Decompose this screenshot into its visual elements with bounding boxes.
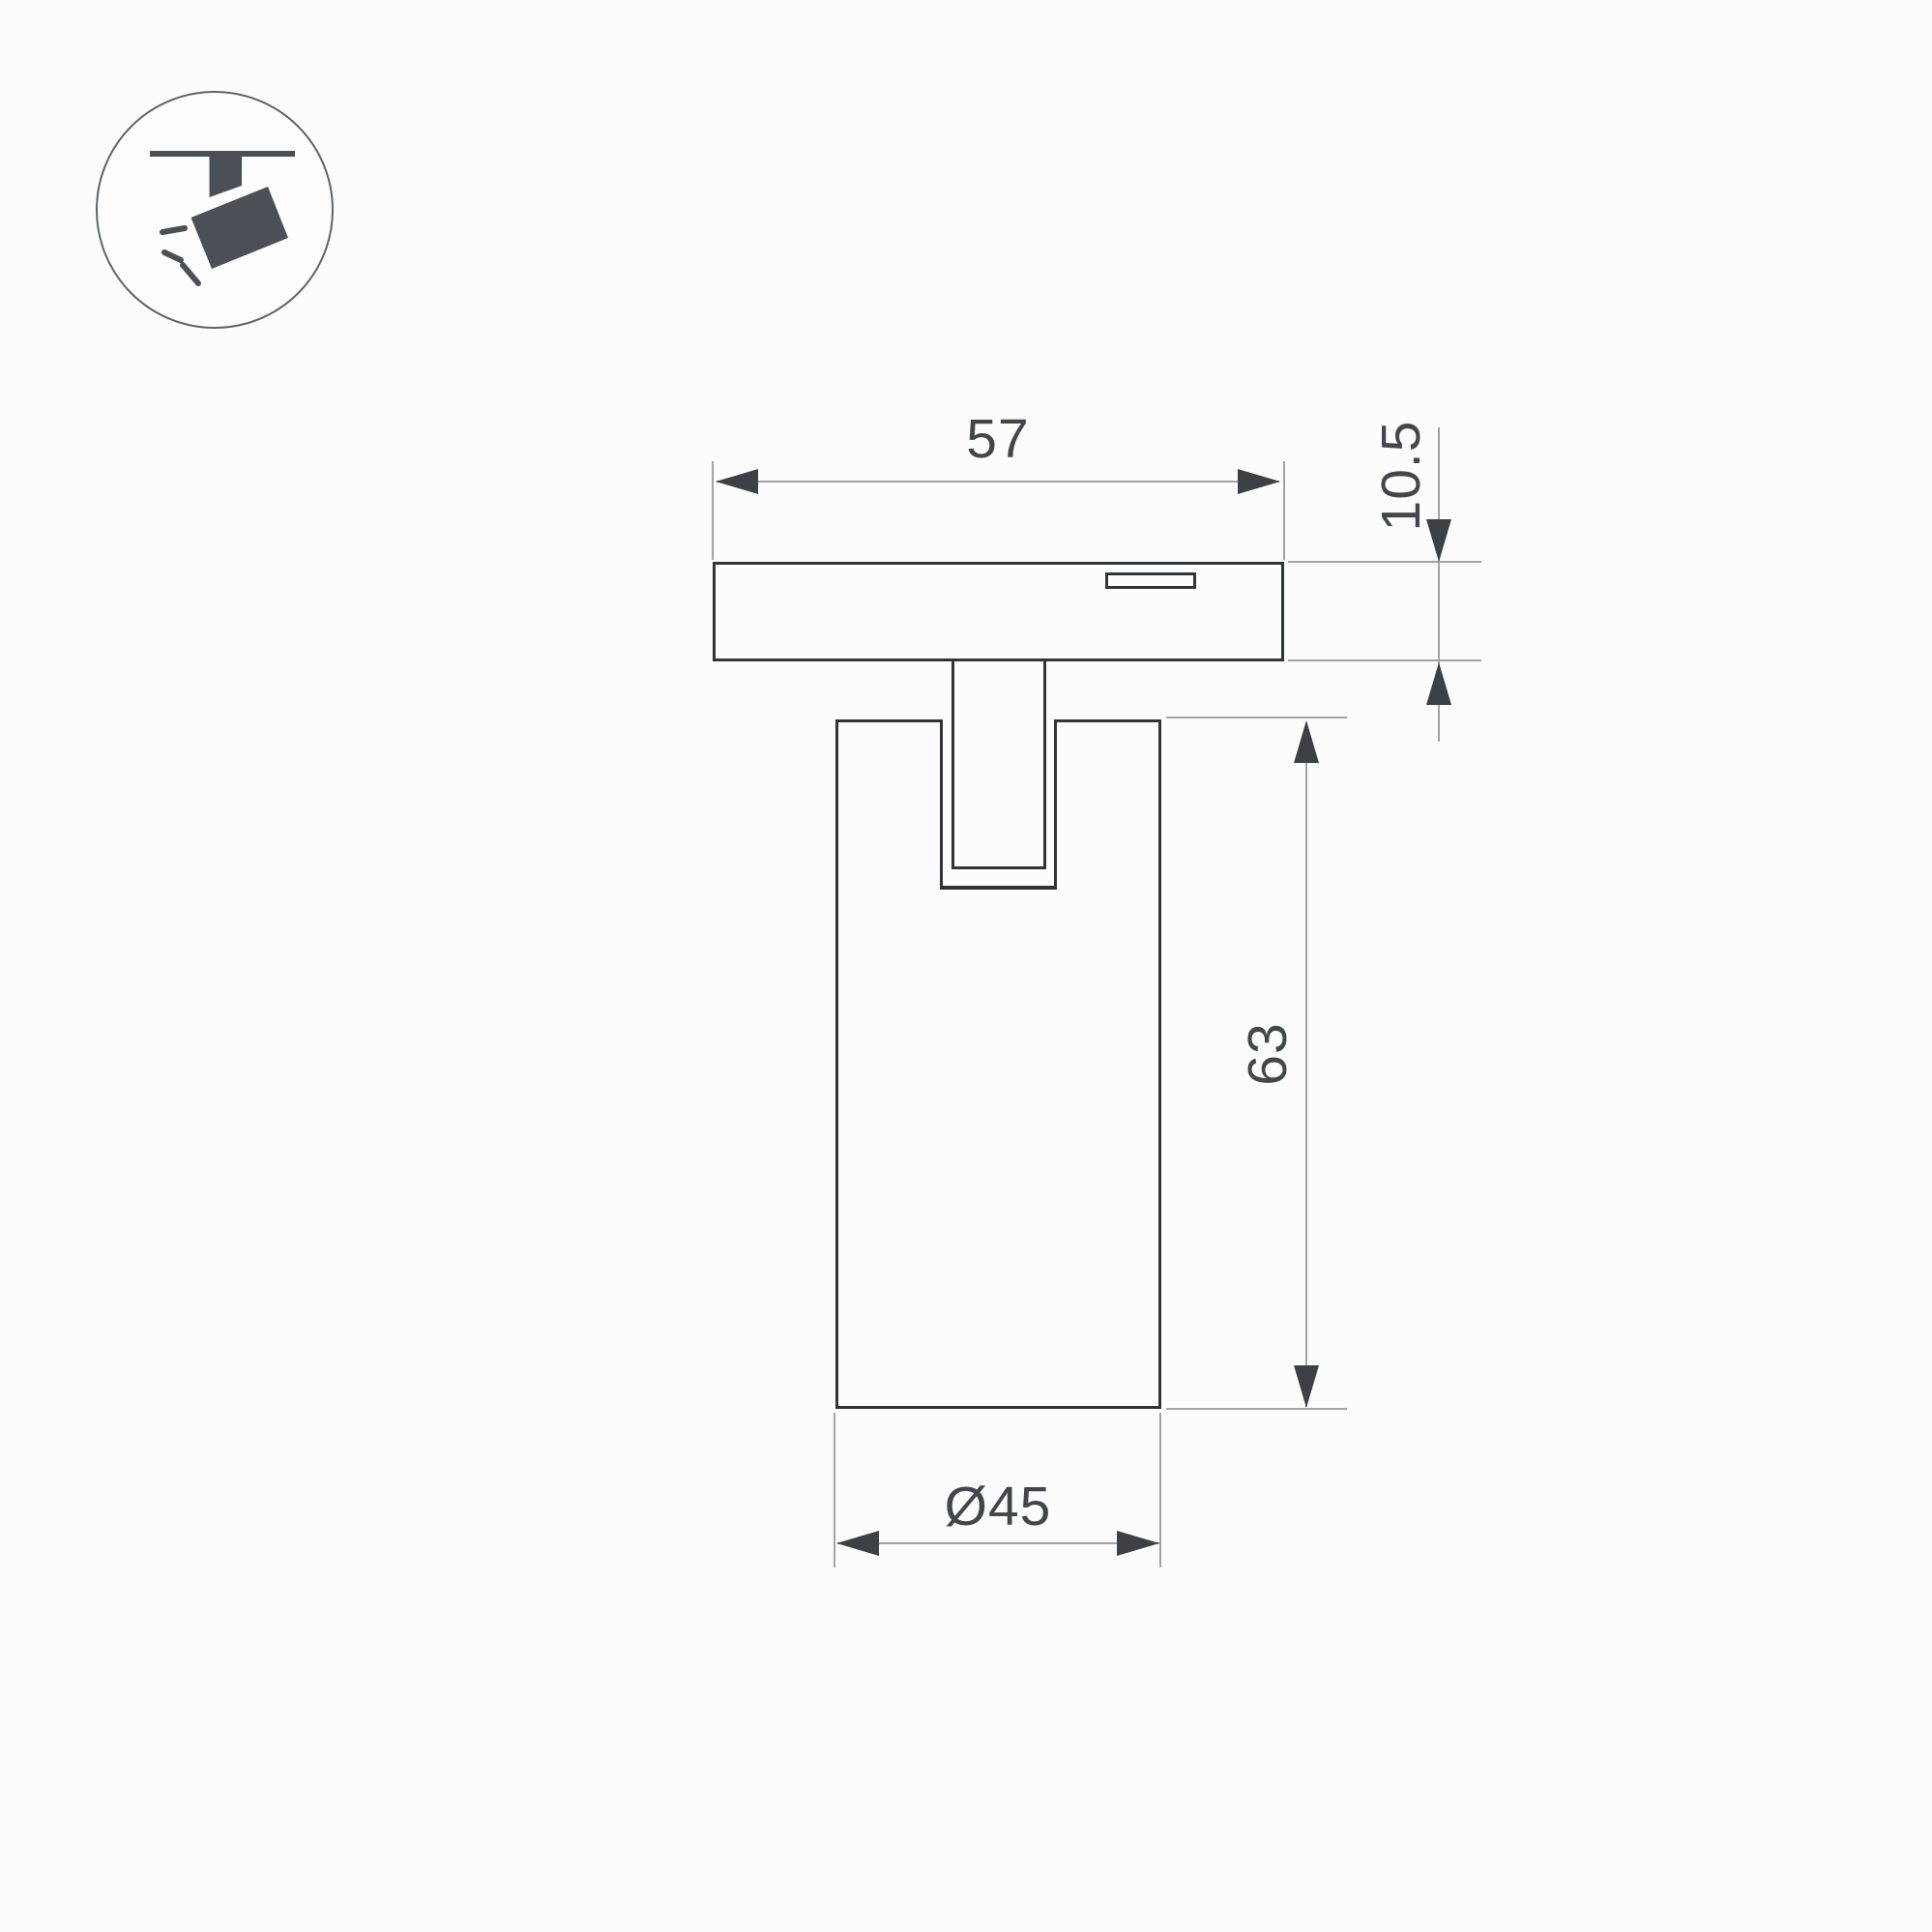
dim63-line [1305,722,1307,1407]
dim57-line [717,481,1279,483]
dim45-arrow-right [1117,1531,1159,1556]
dim105-arrow-up [1426,662,1451,705]
dim57-arrow-left [716,469,758,494]
technical-drawing-canvas: 57 10.5 63 Ø45 [0,0,1932,1932]
dim105-ext-line-bottom [1288,659,1481,661]
dim63-ext-line-top [1166,717,1347,718]
dim57-ext-line-left [712,461,714,560]
dim45-arrow-left [836,1531,879,1556]
dim45-ext-line-right [1159,1413,1161,1567]
dim45-line [837,1542,1159,1544]
track-spotlight-icon [98,93,332,327]
body-top-edge-right [1057,719,1161,722]
dim63-label: 63 [1239,996,1297,1112]
spot-head-icon [191,187,289,269]
body-top-edge-left [835,719,940,722]
light-rays-icon [162,228,198,283]
dim63-arrow-up [1294,720,1319,763]
adapter-slot [1105,572,1196,589]
dim105-label: 10.5 [1372,398,1430,553]
dim63-ext-line-bottom [1166,1408,1347,1410]
dim45-label: Ø45 [921,1478,1075,1536]
dim57-arrow-right [1238,469,1280,494]
dim105-ext-line-top [1288,561,1481,563]
track-adapter-outline [713,562,1284,661]
dim63-arrow-down [1294,1365,1319,1408]
mount-type-badge [96,91,334,329]
body-outline [835,719,1161,1409]
dim57-ext-line-right [1283,461,1285,560]
dim45-ext-line-left [834,1413,835,1567]
spot-stem-icon [210,156,243,197]
dim57-label: 57 [921,410,1075,468]
